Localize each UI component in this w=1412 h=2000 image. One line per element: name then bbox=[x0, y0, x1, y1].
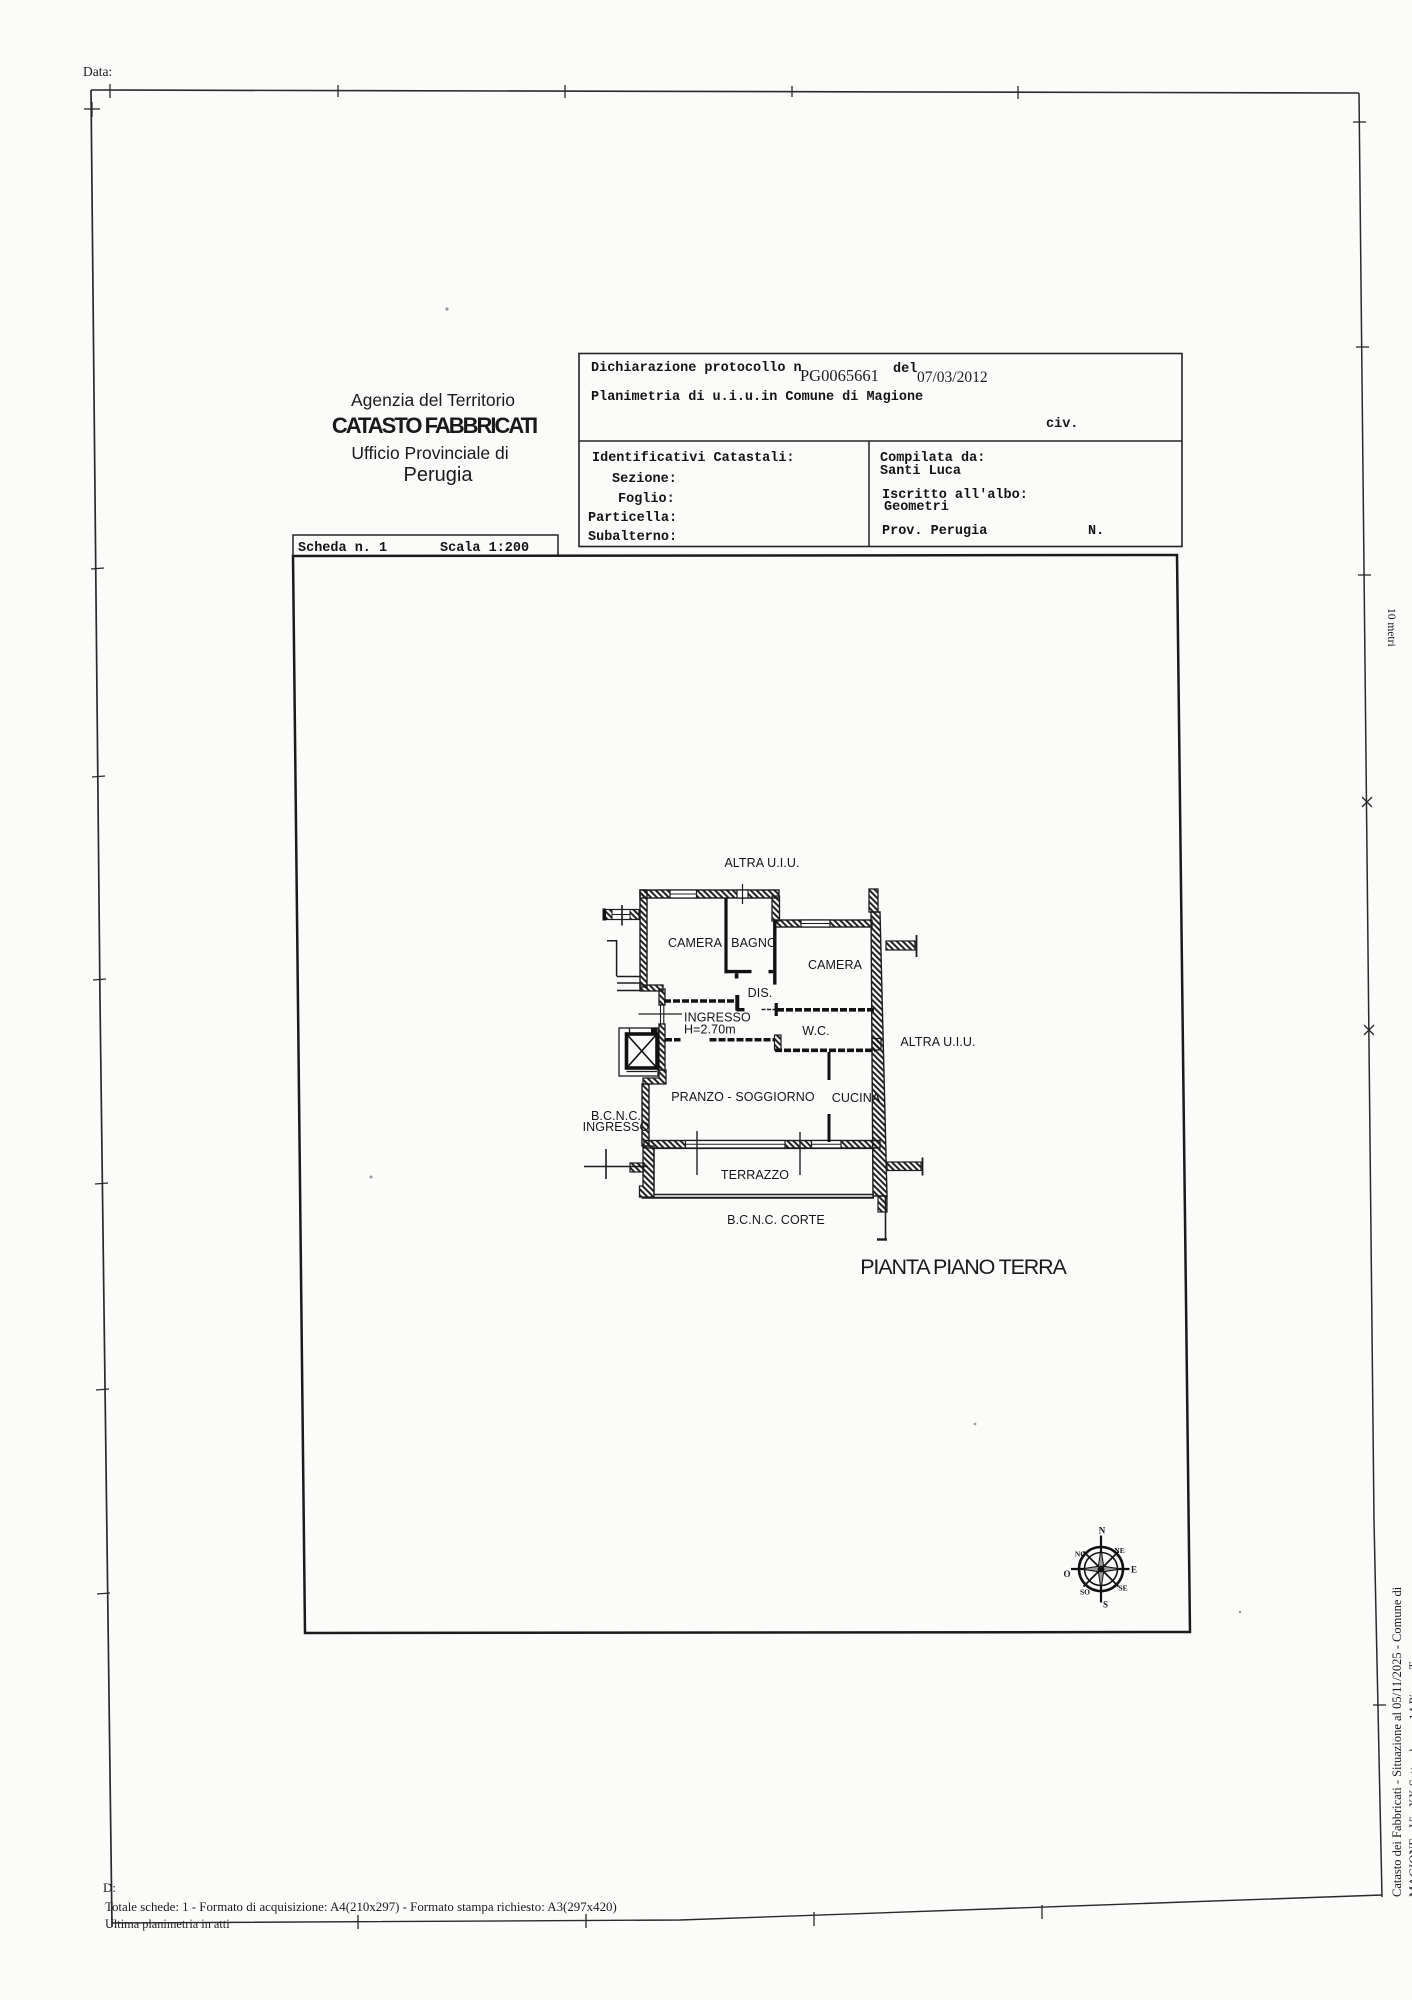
svg-text:BAGNO: BAGNO bbox=[731, 936, 777, 950]
svg-text:Scheda n. 1: Scheda n. 1 bbox=[298, 541, 387, 556]
svg-text:Geometri: Geometri bbox=[884, 500, 949, 515]
svg-text:civ.: civ. bbox=[1046, 417, 1078, 432]
svg-text:O: O bbox=[1063, 1569, 1070, 1579]
svg-text:Identificativi Catastali:: Identificativi Catastali: bbox=[592, 451, 795, 466]
svg-text:NO: NO bbox=[1075, 1550, 1086, 1559]
svg-text:B.C.N.C. CORTE: B.C.N.C. CORTE bbox=[727, 1213, 825, 1227]
svg-text:ALTRA U.I.U.: ALTRA U.I.U. bbox=[900, 1035, 975, 1049]
svg-text:CAMERA: CAMERA bbox=[668, 936, 723, 950]
svg-text:07/03/2012: 07/03/2012 bbox=[917, 369, 988, 386]
svg-text:Particella:: Particella: bbox=[588, 511, 677, 526]
svg-text:Planimetria di u.i.u.in Comune: Planimetria di u.i.u.in Comune di Magion… bbox=[591, 390, 923, 405]
svg-text:Prov. Perugia: Prov. Perugia bbox=[882, 524, 987, 539]
svg-text:ALTRA U.I.U.: ALTRA U.I.U. bbox=[724, 856, 799, 870]
svg-text:W.C.: W.C. bbox=[802, 1024, 829, 1038]
svg-text:Subalterno:: Subalterno: bbox=[588, 530, 677, 545]
svg-text:Catasto dei Fabbricati - Situa: Catasto dei Fabbricati - Situazione al 0… bbox=[1390, 1586, 1404, 1897]
svg-text:Totale schede: 1 - Formato di: Totale schede: 1 - Formato di acquisizio… bbox=[105, 1900, 617, 1914]
svg-text:del: del bbox=[893, 362, 917, 377]
svg-text:SO: SO bbox=[1080, 1588, 1090, 1597]
svg-text:MAGIONE - Via XX Settembre: MAGIONE - Via XX Settembre n. 14 Piano: … bbox=[1407, 1661, 1412, 1897]
svg-text:INGRESSO: INGRESSO bbox=[583, 1120, 650, 1134]
svg-text:CAMERA: CAMERA bbox=[808, 958, 863, 972]
svg-text:PIANTA PIANO TERRA: PIANTA PIANO TERRA bbox=[860, 1255, 1067, 1279]
svg-text:E: E bbox=[1131, 1565, 1137, 1575]
svg-text:Dichiarazione protocollo n: Dichiarazione protocollo n bbox=[591, 361, 802, 376]
svg-text:Sezione:: Sezione: bbox=[612, 472, 677, 487]
svg-text:Foglio:: Foglio: bbox=[618, 492, 675, 507]
svg-text:D:: D: bbox=[103, 1880, 116, 1895]
svg-text:SE: SE bbox=[1118, 1584, 1127, 1593]
svg-text:PRANZO - SOGGIORNO: PRANZO - SOGGIORNO bbox=[671, 1090, 815, 1104]
svg-text:PG0065661: PG0065661 bbox=[800, 366, 879, 385]
svg-text:DIS.: DIS. bbox=[748, 986, 773, 1000]
svg-text:CATASTO FABBRICATI: CATASTO FABBRICATI bbox=[332, 413, 537, 438]
svg-text:Perugia: Perugia bbox=[404, 464, 474, 486]
svg-text:Agenzia del Territorio: Agenzia del Territorio bbox=[351, 390, 515, 410]
svg-text:S: S bbox=[1103, 1600, 1108, 1610]
svg-text:TERRAZZO: TERRAZZO bbox=[721, 1168, 789, 1182]
svg-text:Ultima planimetria in atti: Ultima planimetria in atti bbox=[105, 1917, 230, 1931]
svg-text:N: N bbox=[1099, 1526, 1106, 1536]
svg-text:H=2.70m: H=2.70m bbox=[684, 1023, 736, 1037]
svg-text:NE: NE bbox=[1114, 1546, 1124, 1555]
svg-text:Ufficio Provinciale di: Ufficio Provinciale di bbox=[351, 443, 508, 463]
svg-text:Data:: Data: bbox=[83, 64, 112, 79]
svg-text:Scala 1:200: Scala 1:200 bbox=[440, 541, 529, 556]
svg-text:N.: N. bbox=[1088, 524, 1104, 539]
svg-text:10 metri: 10 metri bbox=[1385, 608, 1397, 647]
svg-text:Santi Luca: Santi Luca bbox=[880, 464, 961, 479]
